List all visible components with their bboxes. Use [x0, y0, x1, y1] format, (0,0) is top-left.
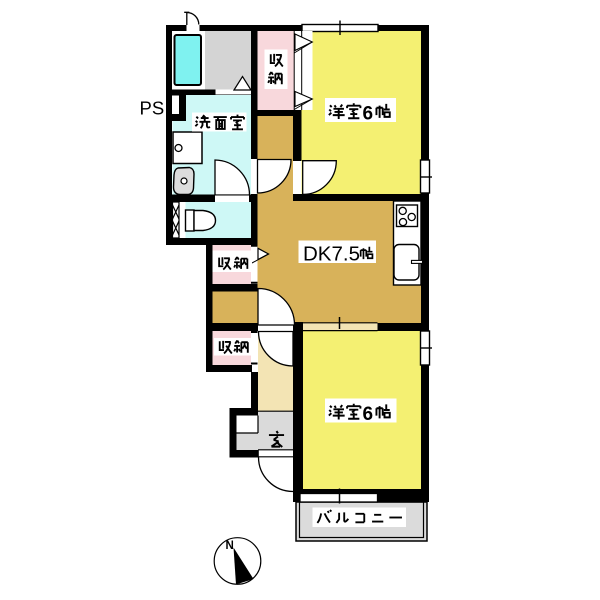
- svg-text:PS: PS: [140, 98, 165, 119]
- svg-text:N: N: [226, 540, 234, 552]
- svg-text:DK7.5: DK7.5: [303, 243, 360, 266]
- svg-text:6: 6: [363, 404, 374, 425]
- svg-text:6: 6: [363, 104, 374, 125]
